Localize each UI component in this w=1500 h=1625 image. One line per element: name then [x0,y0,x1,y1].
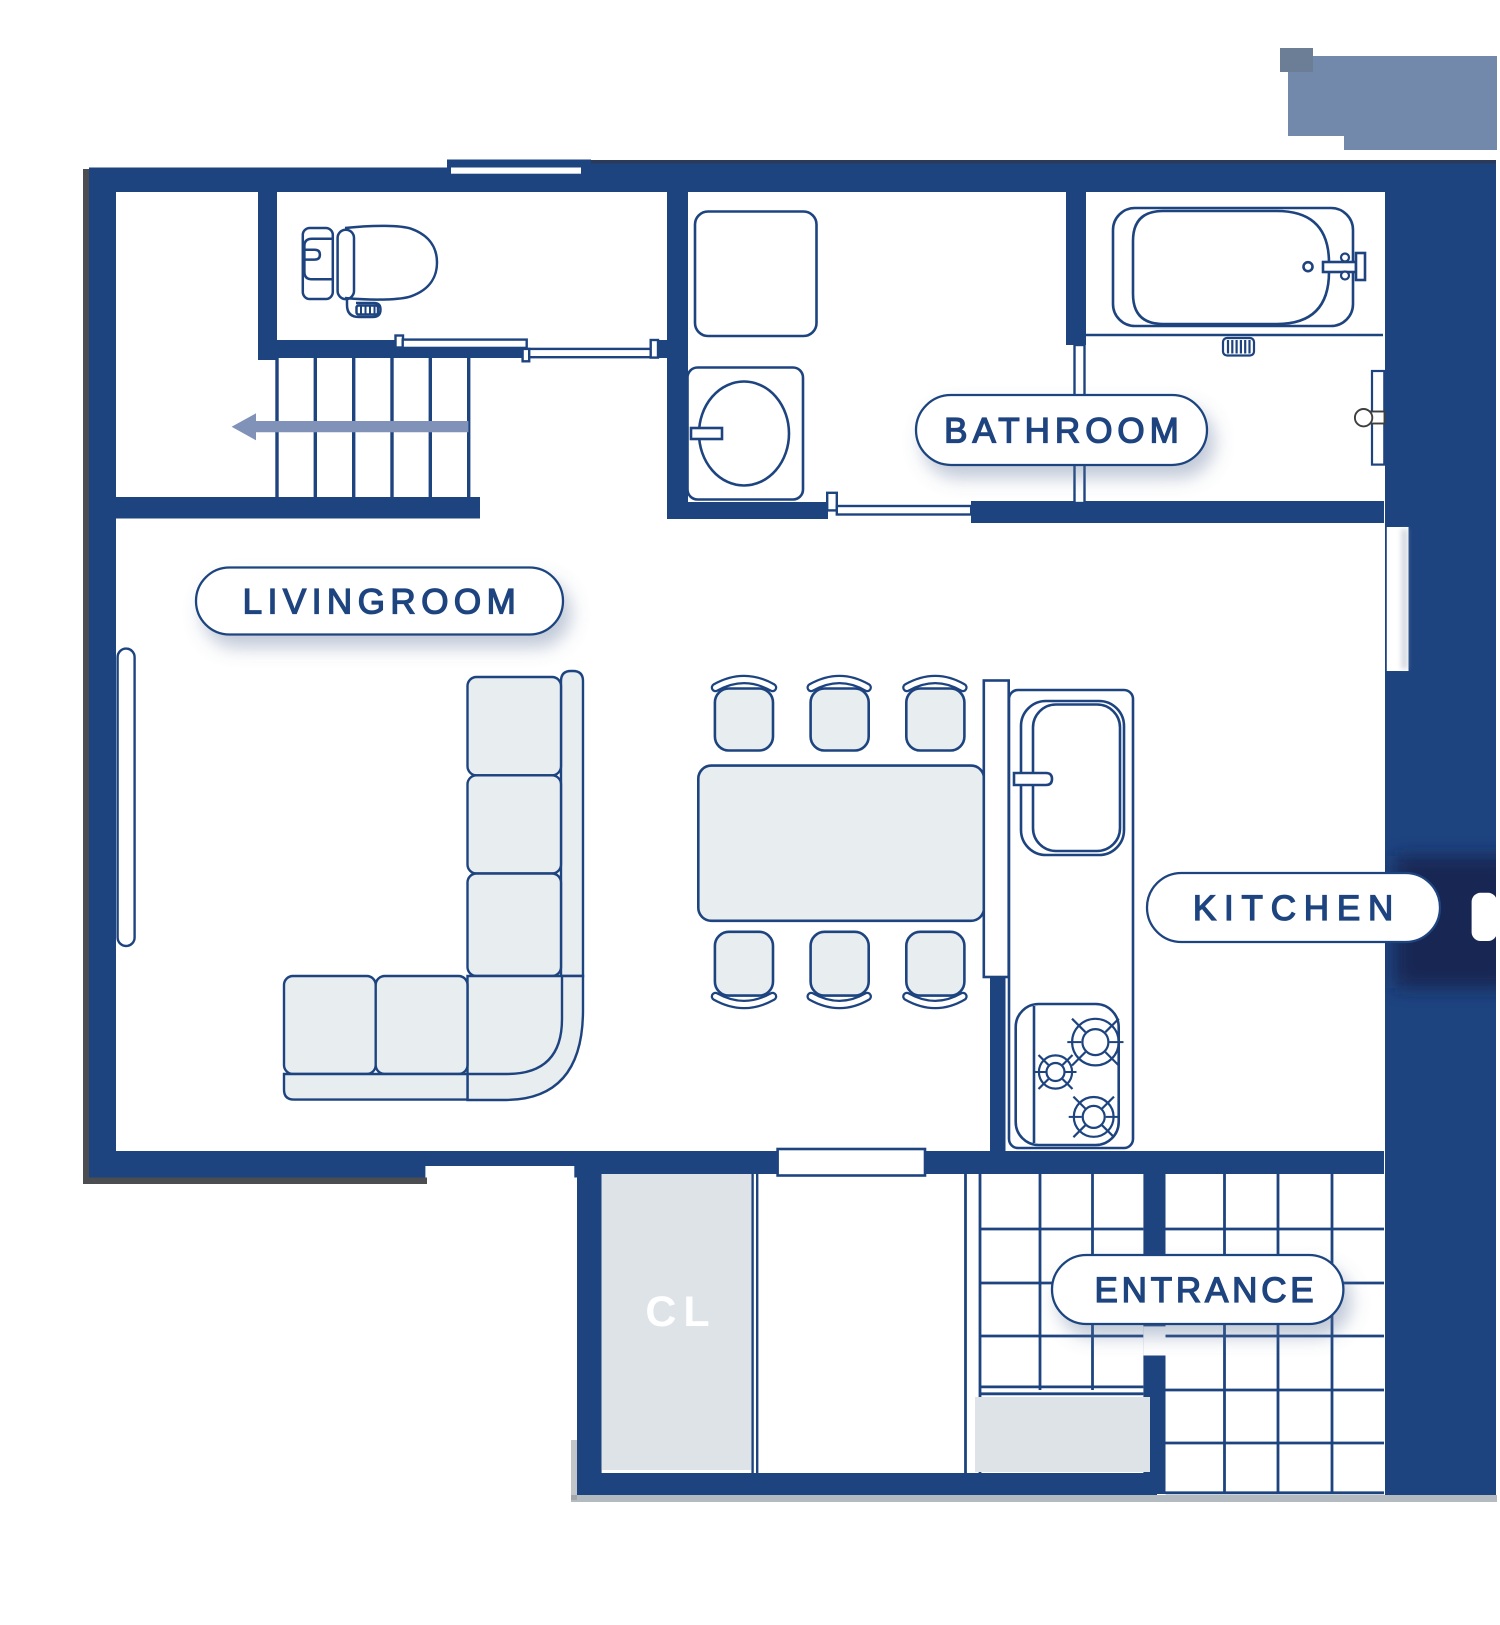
svg-text:BATHROOM: BATHROOM [944,412,1184,451]
svg-text:KITCHEN: KITCHEN [1193,889,1401,928]
svg-text:LIVINGROOM: LIVINGROOM [243,583,522,622]
svg-text:CL: CL [645,1288,716,1336]
svg-text:ENTRANCE: ENTRANCE [1095,1271,1318,1310]
